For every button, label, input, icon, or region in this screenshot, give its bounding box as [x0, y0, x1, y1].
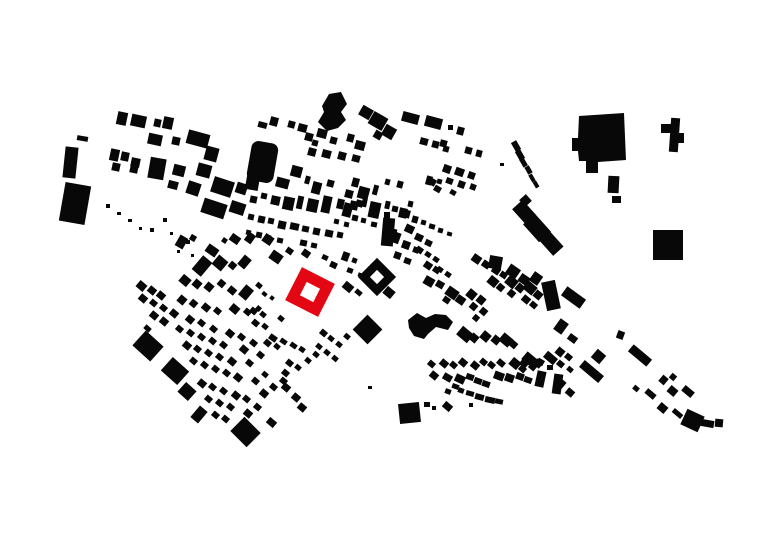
building-footprint — [161, 357, 189, 385]
building-footprint — [269, 116, 279, 127]
building-footprint — [261, 291, 267, 297]
building-footprint — [197, 332, 206, 341]
building-footprint — [156, 290, 167, 301]
building-footprint — [177, 250, 180, 253]
building-footprint — [458, 357, 469, 368]
building-footprint — [351, 154, 361, 163]
building-footprint — [437, 227, 443, 233]
building-footprint — [398, 402, 421, 424]
building-footprint — [162, 116, 174, 130]
building-footprint — [261, 371, 269, 379]
building-footprint — [371, 221, 378, 227]
building-footprint — [391, 205, 398, 212]
building-footprint — [628, 344, 652, 366]
building-footprint — [189, 234, 197, 242]
building-footprint — [291, 392, 302, 403]
building-footprint — [266, 417, 277, 428]
building-footprint — [229, 200, 247, 216]
building-footprint — [445, 177, 454, 185]
building-footprint — [244, 232, 256, 245]
building-footprint — [403, 257, 412, 265]
building-footprint — [225, 328, 236, 339]
building-footprint — [368, 386, 372, 389]
building-footprint — [307, 147, 317, 157]
building-footprint — [484, 396, 495, 404]
building-footprint — [329, 136, 338, 145]
building-footprint — [77, 135, 89, 142]
building-footprint — [304, 132, 314, 142]
building-footprint — [237, 332, 246, 341]
building-footprint — [473, 377, 483, 385]
building-footprint — [524, 165, 532, 174]
building-footprint — [289, 222, 299, 231]
building-footprint — [245, 174, 260, 191]
building-footprint — [479, 307, 489, 317]
building-footprint — [547, 365, 553, 370]
building-footprint — [116, 111, 128, 126]
building-footprint — [297, 123, 308, 133]
building-footprint — [469, 183, 477, 191]
building-footprint — [219, 340, 228, 349]
building-footprint — [282, 196, 295, 211]
building-footprint — [572, 113, 626, 173]
building-footprint — [311, 181, 323, 195]
building-footprint — [528, 174, 535, 183]
building-footprint — [193, 344, 202, 353]
building-footprint — [436, 178, 442, 184]
building-footprint — [447, 231, 453, 236]
building-footprint — [408, 313, 453, 339]
building-footprint — [221, 414, 230, 423]
building-footprint — [111, 162, 120, 171]
building-footprint — [270, 195, 281, 206]
building-footprint — [444, 388, 451, 395]
building-footprint — [245, 358, 254, 367]
building-footprint — [487, 360, 496, 369]
building-footprint — [311, 139, 318, 146]
building-footprint — [320, 195, 332, 213]
building-footprint — [304, 175, 311, 184]
building-footprint — [319, 328, 328, 337]
building-footprint — [117, 212, 121, 215]
building-footprint — [211, 410, 220, 419]
building-footprint — [204, 348, 213, 357]
figure-ground-map — [0, 0, 780, 552]
building-footprint — [457, 180, 466, 189]
building-footprint — [632, 385, 640, 393]
building-footprint — [507, 289, 517, 299]
building-footprint — [294, 364, 302, 372]
building-footprint — [553, 318, 569, 334]
building-footprint — [255, 282, 263, 290]
building-footprint — [653, 230, 683, 260]
building-footprint — [644, 388, 656, 400]
building-footprint — [384, 212, 390, 218]
building-footprint — [269, 382, 278, 391]
building-footprint — [172, 164, 186, 178]
building-footprint — [226, 402, 235, 411]
building-footprint — [273, 343, 281, 351]
building-footprint — [521, 294, 532, 305]
building-footprint — [321, 254, 329, 261]
building-footprint — [342, 281, 355, 294]
building-footprint — [177, 382, 196, 401]
building-footprint — [612, 196, 621, 203]
building-footprint — [277, 220, 286, 229]
building-footprint — [465, 288, 478, 301]
building-footprint — [361, 218, 367, 224]
building-footprint — [259, 388, 270, 399]
building-footprint — [669, 373, 677, 381]
building-footprint — [186, 129, 211, 148]
building-footprint — [504, 373, 515, 384]
building-footprint — [500, 163, 504, 166]
building-footprint — [435, 279, 445, 289]
building-footprint — [396, 180, 404, 188]
building-footprint — [351, 177, 360, 188]
building-footprint — [448, 125, 453, 130]
building-footprint — [242, 394, 251, 403]
building-footprint — [256, 350, 265, 359]
building-footprint — [62, 146, 78, 178]
building-footprint — [472, 314, 480, 322]
building-footprint — [182, 340, 193, 351]
building-footprint — [175, 235, 189, 250]
building-footprint — [384, 178, 390, 185]
building-footprint — [456, 126, 465, 136]
building-footprint — [442, 164, 452, 174]
building-footprint — [465, 373, 475, 381]
building-footprint — [566, 366, 574, 374]
building-footprint — [109, 148, 120, 162]
building-footprint — [261, 233, 274, 246]
building-footprint — [253, 402, 262, 411]
building-footprint — [341, 251, 351, 262]
building-footprint — [239, 344, 250, 355]
building-footprint — [311, 242, 318, 248]
building-footprint — [469, 302, 479, 312]
building-footprint — [556, 359, 565, 368]
building-footprint — [229, 233, 242, 245]
building-footprint — [192, 255, 213, 277]
building-footprint — [419, 137, 429, 146]
building-footprint — [331, 355, 339, 363]
building-footprint — [227, 285, 238, 296]
building-footprint — [279, 337, 288, 345]
building-footprint — [237, 255, 252, 270]
building-footprint — [312, 351, 320, 359]
building-footprint — [213, 306, 222, 315]
building-footprint — [150, 228, 154, 232]
building-footprint — [579, 360, 604, 383]
building-footprint — [153, 118, 162, 127]
building-footprint — [269, 295, 275, 301]
building-footprint — [351, 214, 358, 221]
building-footprint — [414, 233, 424, 243]
building-footprint — [285, 247, 294, 256]
building-footprint — [299, 239, 307, 246]
building-footprint — [561, 286, 586, 308]
building-footprint — [454, 167, 465, 178]
building-footprint — [217, 279, 227, 289]
building-footprint — [493, 371, 505, 382]
building-footprint — [132, 331, 163, 362]
building-footprint — [393, 251, 402, 260]
building-footprint — [191, 278, 202, 289]
building-footprint — [315, 343, 323, 351]
building-footprint — [384, 201, 391, 210]
building-footprint — [190, 406, 207, 424]
building-footprint — [661, 124, 672, 133]
building-footprint — [138, 293, 149, 304]
building-footprint — [715, 419, 724, 428]
building-footprint — [301, 225, 309, 232]
building-footprint — [442, 401, 453, 412]
building-footprint — [534, 370, 546, 388]
building-footprint — [249, 195, 257, 203]
building-footprint — [159, 303, 168, 312]
building-footprint — [318, 92, 347, 131]
building-footprint — [479, 330, 492, 343]
building-footprint — [231, 390, 242, 401]
building-footprint — [277, 237, 284, 243]
building-footprint — [439, 358, 450, 369]
building-footprint — [147, 157, 166, 180]
building-footprint — [334, 219, 340, 225]
building-footprint — [351, 257, 357, 263]
building-footprint — [219, 386, 228, 395]
building-footprint — [658, 375, 669, 386]
building-footprint — [259, 311, 267, 319]
building-footprint — [343, 333, 351, 341]
building-footprint — [203, 281, 214, 292]
building-footprint — [346, 133, 355, 143]
building-footprint — [135, 280, 147, 292]
building-footprint — [496, 358, 506, 368]
building-footprint — [178, 274, 191, 287]
building-footprint — [296, 196, 305, 210]
building-footprint — [565, 387, 576, 398]
building-footprint — [197, 318, 206, 327]
building-footprint — [354, 140, 366, 151]
building-footprint — [287, 120, 296, 129]
building-footprint — [312, 227, 320, 235]
building-footprint — [251, 318, 260, 327]
building-footprint — [372, 185, 379, 196]
building-footprint — [541, 280, 561, 311]
building-footprint — [591, 349, 606, 364]
building-footprint — [289, 341, 298, 349]
building-footprint — [411, 215, 419, 223]
building-footprint — [424, 115, 443, 130]
building-footprint — [608, 176, 620, 194]
building-footprint — [238, 284, 254, 300]
building-footprint — [656, 402, 668, 414]
building-footprint — [329, 261, 338, 269]
building-footprint — [678, 133, 684, 143]
building-footprint — [257, 121, 267, 129]
building-footprint — [444, 271, 452, 279]
building-footprint — [432, 406, 436, 410]
building-footprint — [200, 198, 227, 220]
building-footprint — [479, 357, 488, 366]
building-footprint — [200, 360, 209, 369]
building-footprint — [201, 302, 212, 313]
building-footprint — [290, 165, 303, 178]
building-footprint — [336, 231, 343, 238]
building-footprint — [564, 352, 573, 361]
building-footprint — [401, 240, 411, 250]
building-footprint — [257, 215, 265, 223]
building-footprint — [227, 356, 238, 367]
building-footprint — [275, 176, 290, 189]
building-footprint — [163, 218, 167, 222]
building-footprint — [298, 346, 306, 354]
building-footprint — [327, 335, 335, 343]
building-footprint — [189, 356, 198, 365]
building-footprint — [337, 151, 347, 161]
building-footprint — [442, 372, 453, 383]
building-footprint — [324, 229, 333, 238]
building-footprint — [432, 256, 440, 264]
building-footprint — [211, 364, 220, 373]
building-footprint — [567, 333, 578, 344]
building-footprint — [475, 149, 483, 157]
building-footprint — [222, 368, 231, 377]
building-footprint — [149, 298, 158, 307]
building-footprint — [205, 243, 220, 257]
building-footprint — [167, 180, 179, 190]
building-footprint — [306, 198, 319, 213]
building-footprint — [304, 357, 312, 365]
building-footprint — [449, 189, 457, 196]
building-footprint — [429, 370, 440, 381]
building-footprint — [159, 316, 170, 327]
building-footprint — [129, 164, 138, 173]
building-footprint — [469, 403, 473, 407]
building-footprint — [554, 346, 565, 357]
building-footprint — [465, 390, 474, 397]
building-footprint — [281, 368, 290, 377]
building-footprint — [407, 201, 413, 208]
building-footprint — [680, 409, 704, 432]
building-footprint — [529, 300, 538, 309]
building-footprint — [428, 223, 435, 229]
building-footprint — [335, 341, 343, 349]
building-footprint — [326, 179, 335, 188]
building-footprint — [285, 358, 294, 367]
building-footprint — [431, 140, 440, 149]
building-footprint — [247, 213, 254, 220]
building-footprint — [344, 189, 354, 199]
building-footprint — [267, 217, 274, 224]
building-footprint — [449, 360, 458, 369]
building-footprint — [215, 398, 224, 407]
building-footprint — [221, 237, 228, 244]
building-footprint — [175, 324, 184, 333]
building-footprint — [433, 185, 442, 194]
building-footprint — [467, 171, 476, 180]
building-footprint — [204, 394, 213, 403]
building-footprint — [454, 373, 466, 384]
building-footprint — [523, 376, 533, 384]
building-footprint — [128, 219, 132, 222]
building-footprint — [404, 223, 416, 234]
building-footprint — [147, 133, 163, 147]
building-footprint — [681, 385, 695, 398]
building-footprint — [423, 260, 434, 270]
building-footprint — [59, 182, 91, 225]
building-footprint — [616, 330, 625, 340]
building-footprint — [255, 231, 262, 238]
building-footprint — [367, 201, 381, 219]
building-footprint — [401, 111, 420, 125]
building-footprint — [143, 324, 152, 332]
building-footprint — [139, 227, 142, 230]
building-footprint — [197, 378, 208, 389]
building-footprint — [147, 285, 158, 296]
building-footprint — [344, 222, 350, 228]
building-footprint — [700, 419, 714, 428]
building-footprint — [228, 261, 238, 271]
building-footprint — [353, 315, 383, 345]
building-footprint — [427, 359, 436, 368]
building-footprint — [260, 192, 267, 199]
building-footprint — [422, 275, 435, 288]
building-footprint — [209, 324, 218, 333]
building-footprint — [672, 408, 684, 419]
building-footprint — [176, 294, 187, 305]
building-footprint — [208, 336, 217, 345]
building-footprint — [106, 204, 110, 208]
building-footprint — [464, 146, 473, 155]
building-footprint — [495, 398, 504, 405]
building-footprint — [297, 402, 308, 413]
building-footprint — [233, 372, 244, 383]
building-footprint — [346, 267, 353, 274]
building-footprint — [420, 219, 426, 225]
building-footprint — [354, 288, 363, 296]
building-footprint — [171, 136, 180, 145]
building-footprint — [470, 360, 481, 371]
building-footprint — [191, 254, 194, 257]
building-footprint — [481, 380, 491, 388]
building-footprint — [666, 385, 678, 397]
building-footprint — [471, 253, 483, 265]
building-footprint — [268, 249, 284, 264]
building-footprint — [185, 180, 201, 196]
building-footprint — [149, 310, 160, 321]
building-footprint — [321, 149, 332, 159]
building-footprint — [185, 314, 196, 325]
building-footprint — [424, 251, 432, 259]
building-footprint — [186, 328, 195, 337]
building-footprint — [130, 114, 147, 129]
building-footprint — [474, 393, 484, 401]
site-plan-canvas — [0, 0, 780, 552]
building-footprint — [277, 315, 285, 323]
building-footprint — [424, 402, 430, 407]
building-footprint — [228, 303, 240, 315]
building-footprint — [196, 162, 213, 178]
building-footprint — [323, 349, 331, 357]
building-footprint — [249, 338, 258, 347]
building-footprint — [169, 308, 180, 319]
building-footprint — [261, 323, 269, 331]
building-footprint — [208, 382, 217, 391]
building-footprint — [170, 232, 173, 235]
building-footprint — [215, 352, 224, 361]
